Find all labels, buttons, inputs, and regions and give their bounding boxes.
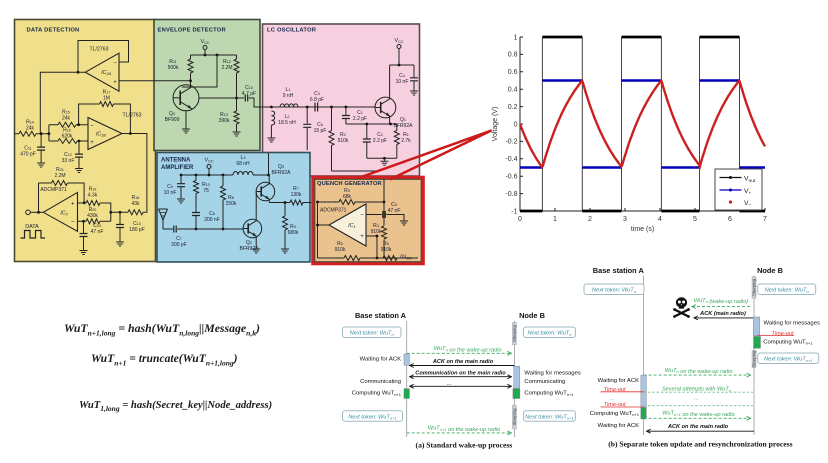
svg-text:Communicating: Communicating <box>360 379 401 385</box>
svg-text:Sleeping: Sleeping <box>751 350 756 368</box>
svg-text:Next token: WuTn: Next token: WuTn <box>765 288 810 294</box>
svg-text:Base station A: Base station A <box>593 266 645 275</box>
svg-text:Sleeping: Sleeping <box>751 278 756 296</box>
svg-text:Waiting for ACK: Waiting for ACK <box>598 423 639 429</box>
svg-text:Next token: WuTn: Next token: WuTn <box>350 331 395 337</box>
svg-text:Next token: WuTn+1: Next token: WuTn+1 <box>764 357 812 363</box>
svg-text:Sleeping: Sleeping <box>512 324 517 342</box>
svg-text:ACK (main radio): ACK (main radio) <box>699 311 746 317</box>
svg-text:...: ... <box>694 395 699 401</box>
svg-text:Next token: WuTn: Next token: WuTn <box>592 288 637 294</box>
svg-text:Node B: Node B <box>757 266 783 275</box>
svg-text:(a) Standard wake-up process: (a) Standard wake-up process <box>416 441 513 450</box>
svg-text:WuTn+1 on the wake-up radio: WuTn+1 on the wake-up radio <box>428 426 500 433</box>
svg-text:WuTn on the wake-up radio: WuTn on the wake-up radio <box>665 368 733 375</box>
svg-text:Computing WuTn+1: Computing WuTn+1 <box>352 391 402 397</box>
svg-text:Computing WuTn+1: Computing WuTn+1 <box>763 339 813 345</box>
svg-text:Node B: Node B <box>519 311 545 320</box>
svg-text:Next token: WuTn: Next token: WuTn <box>527 331 572 337</box>
svg-text:Sleeping: Sleeping <box>512 408 517 426</box>
svg-text:Computing WuTn+1: Computing WuTn+1 <box>524 391 574 397</box>
svg-text:Communication on the main radi: Communication on the main radio <box>415 370 506 376</box>
svg-text:Communicating: Communicating <box>524 379 565 385</box>
svg-text:Waiting for messages: Waiting for messages <box>764 320 820 326</box>
svg-text:WuTn+1 on the wake-up radio: WuTn+1 on the wake-up radio <box>662 411 734 418</box>
svg-text:Waiting for ACK: Waiting for ACK <box>598 378 639 384</box>
svg-text:Next token: WuTn+1: Next token: WuTn+1 <box>525 414 573 420</box>
svg-text:(b) Separate token update and: (b) Separate token update and resynchron… <box>608 439 792 448</box>
svg-text:WuTn on the wake-up radio: WuTn on the wake-up radio <box>434 346 502 353</box>
svg-text:WuTn (wake-up radio): WuTn (wake-up radio) <box>694 298 749 305</box>
svg-text:...: ... <box>610 396 615 402</box>
svg-text:Waiting for ACK: Waiting for ACK <box>360 357 401 363</box>
svg-text:Computing WuTn+1: Computing WuTn+1 <box>590 411 640 417</box>
svg-text:Next token: WuTn+1: Next token: WuTn+1 <box>348 414 396 420</box>
svg-text:Waiting for messages: Waiting for messages <box>524 370 580 376</box>
svg-text:ACK on the main radio: ACK on the main radio <box>667 424 729 430</box>
svg-text:Base station A: Base station A <box>355 311 407 320</box>
svg-text:ACK on the main radio: ACK on the main radio <box>432 359 494 365</box>
